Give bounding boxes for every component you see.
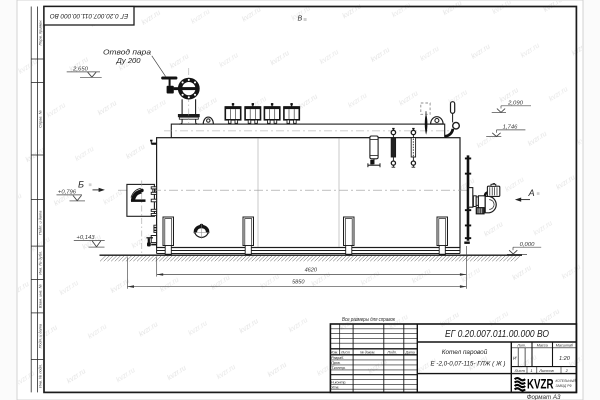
svg-text:Справ. №: Справ. №: [38, 109, 43, 127]
svg-text:ЗАВОД РФ: ЗАВОД РФ: [556, 384, 573, 388]
svg-text:ЕГ 0.20.007.011.00.000 ВО: ЕГ 0.20.007.011.00.000 ВО: [445, 329, 549, 340]
svg-text:0,000: 0,000: [520, 242, 535, 248]
svg-text:Формат А3: Формат А3: [527, 394, 561, 400]
svg-text:+0,796: +0,796: [58, 189, 77, 195]
svg-text:1,746: 1,746: [503, 124, 518, 130]
svg-text:Листов: Листов: [538, 368, 554, 373]
svg-text:1:20: 1:20: [559, 356, 571, 362]
svg-text:4620: 4620: [305, 268, 318, 274]
svg-text:Масса: Масса: [537, 344, 548, 348]
svg-text:Разраб.: Разраб.: [331, 356, 344, 360]
svg-text:Ду 200: Ду 200: [115, 56, 141, 65]
svg-text:5850: 5850: [292, 280, 305, 286]
svg-text:KVZR: KVZR: [527, 377, 554, 392]
svg-text:Лист: Лист: [514, 368, 526, 373]
svg-text:Котел паровой: Котел паровой: [442, 348, 488, 356]
svg-text:1: 1: [530, 368, 532, 373]
svg-text:Б: Б: [78, 179, 84, 189]
svg-text:А: А: [528, 188, 535, 198]
svg-text:Лит.: Лит.: [516, 344, 526, 348]
svg-text:Подп.: Подп.: [388, 351, 397, 355]
svg-text:№ докум.: № докум.: [360, 351, 375, 355]
svg-text:Все размеры для справок: Все размеры для справок: [342, 317, 395, 323]
svg-text:Масштаб: Масштаб: [556, 344, 574, 348]
svg-text:КОТЕЛЬНЫЙ: КОТЕЛЬНЫЙ: [556, 379, 577, 383]
svg-text:2,090: 2,090: [507, 100, 523, 106]
svg-text:Инв. № подл.: Инв. № подл.: [38, 364, 43, 388]
svg-text:Подп. и дата: Подп. и дата: [38, 323, 43, 348]
svg-text:Взам. инв. №: Взам. инв. №: [38, 283, 43, 308]
svg-text:Н.контр.: Н.контр.: [331, 381, 346, 385]
svg-text:Дата: Дата: [405, 351, 415, 355]
svg-text:Утв.: Утв.: [331, 385, 339, 389]
svg-text:Е -2,0-0,07-115- ГЛЖ ( Ж ): Е -2,0-0,07-115- ГЛЖ ( Ж ): [431, 360, 506, 367]
svg-text:Лист: Лист: [340, 351, 350, 355]
svg-text:2,650: 2,650: [72, 66, 88, 72]
svg-text:И: И: [513, 355, 517, 361]
svg-text:Изм.: Изм.: [331, 351, 338, 355]
svg-text:Инв. № дубл.: Инв. № дубл.: [38, 251, 43, 275]
svg-text:Перв. примен.: Перв. примен.: [38, 20, 43, 46]
svg-text:Подп. и дата: Подп. и дата: [38, 210, 43, 235]
svg-text:+0,143: +0,143: [76, 235, 95, 241]
svg-text:Т.контр.: Т.контр.: [331, 366, 346, 370]
svg-text:Пров.: Пров.: [331, 361, 340, 365]
svg-text:В: В: [298, 15, 303, 22]
svg-text:ЕГ 0.20.007.011.00.000 ВО: ЕГ 0.20.007.011.00.000 ВО: [50, 12, 129, 19]
